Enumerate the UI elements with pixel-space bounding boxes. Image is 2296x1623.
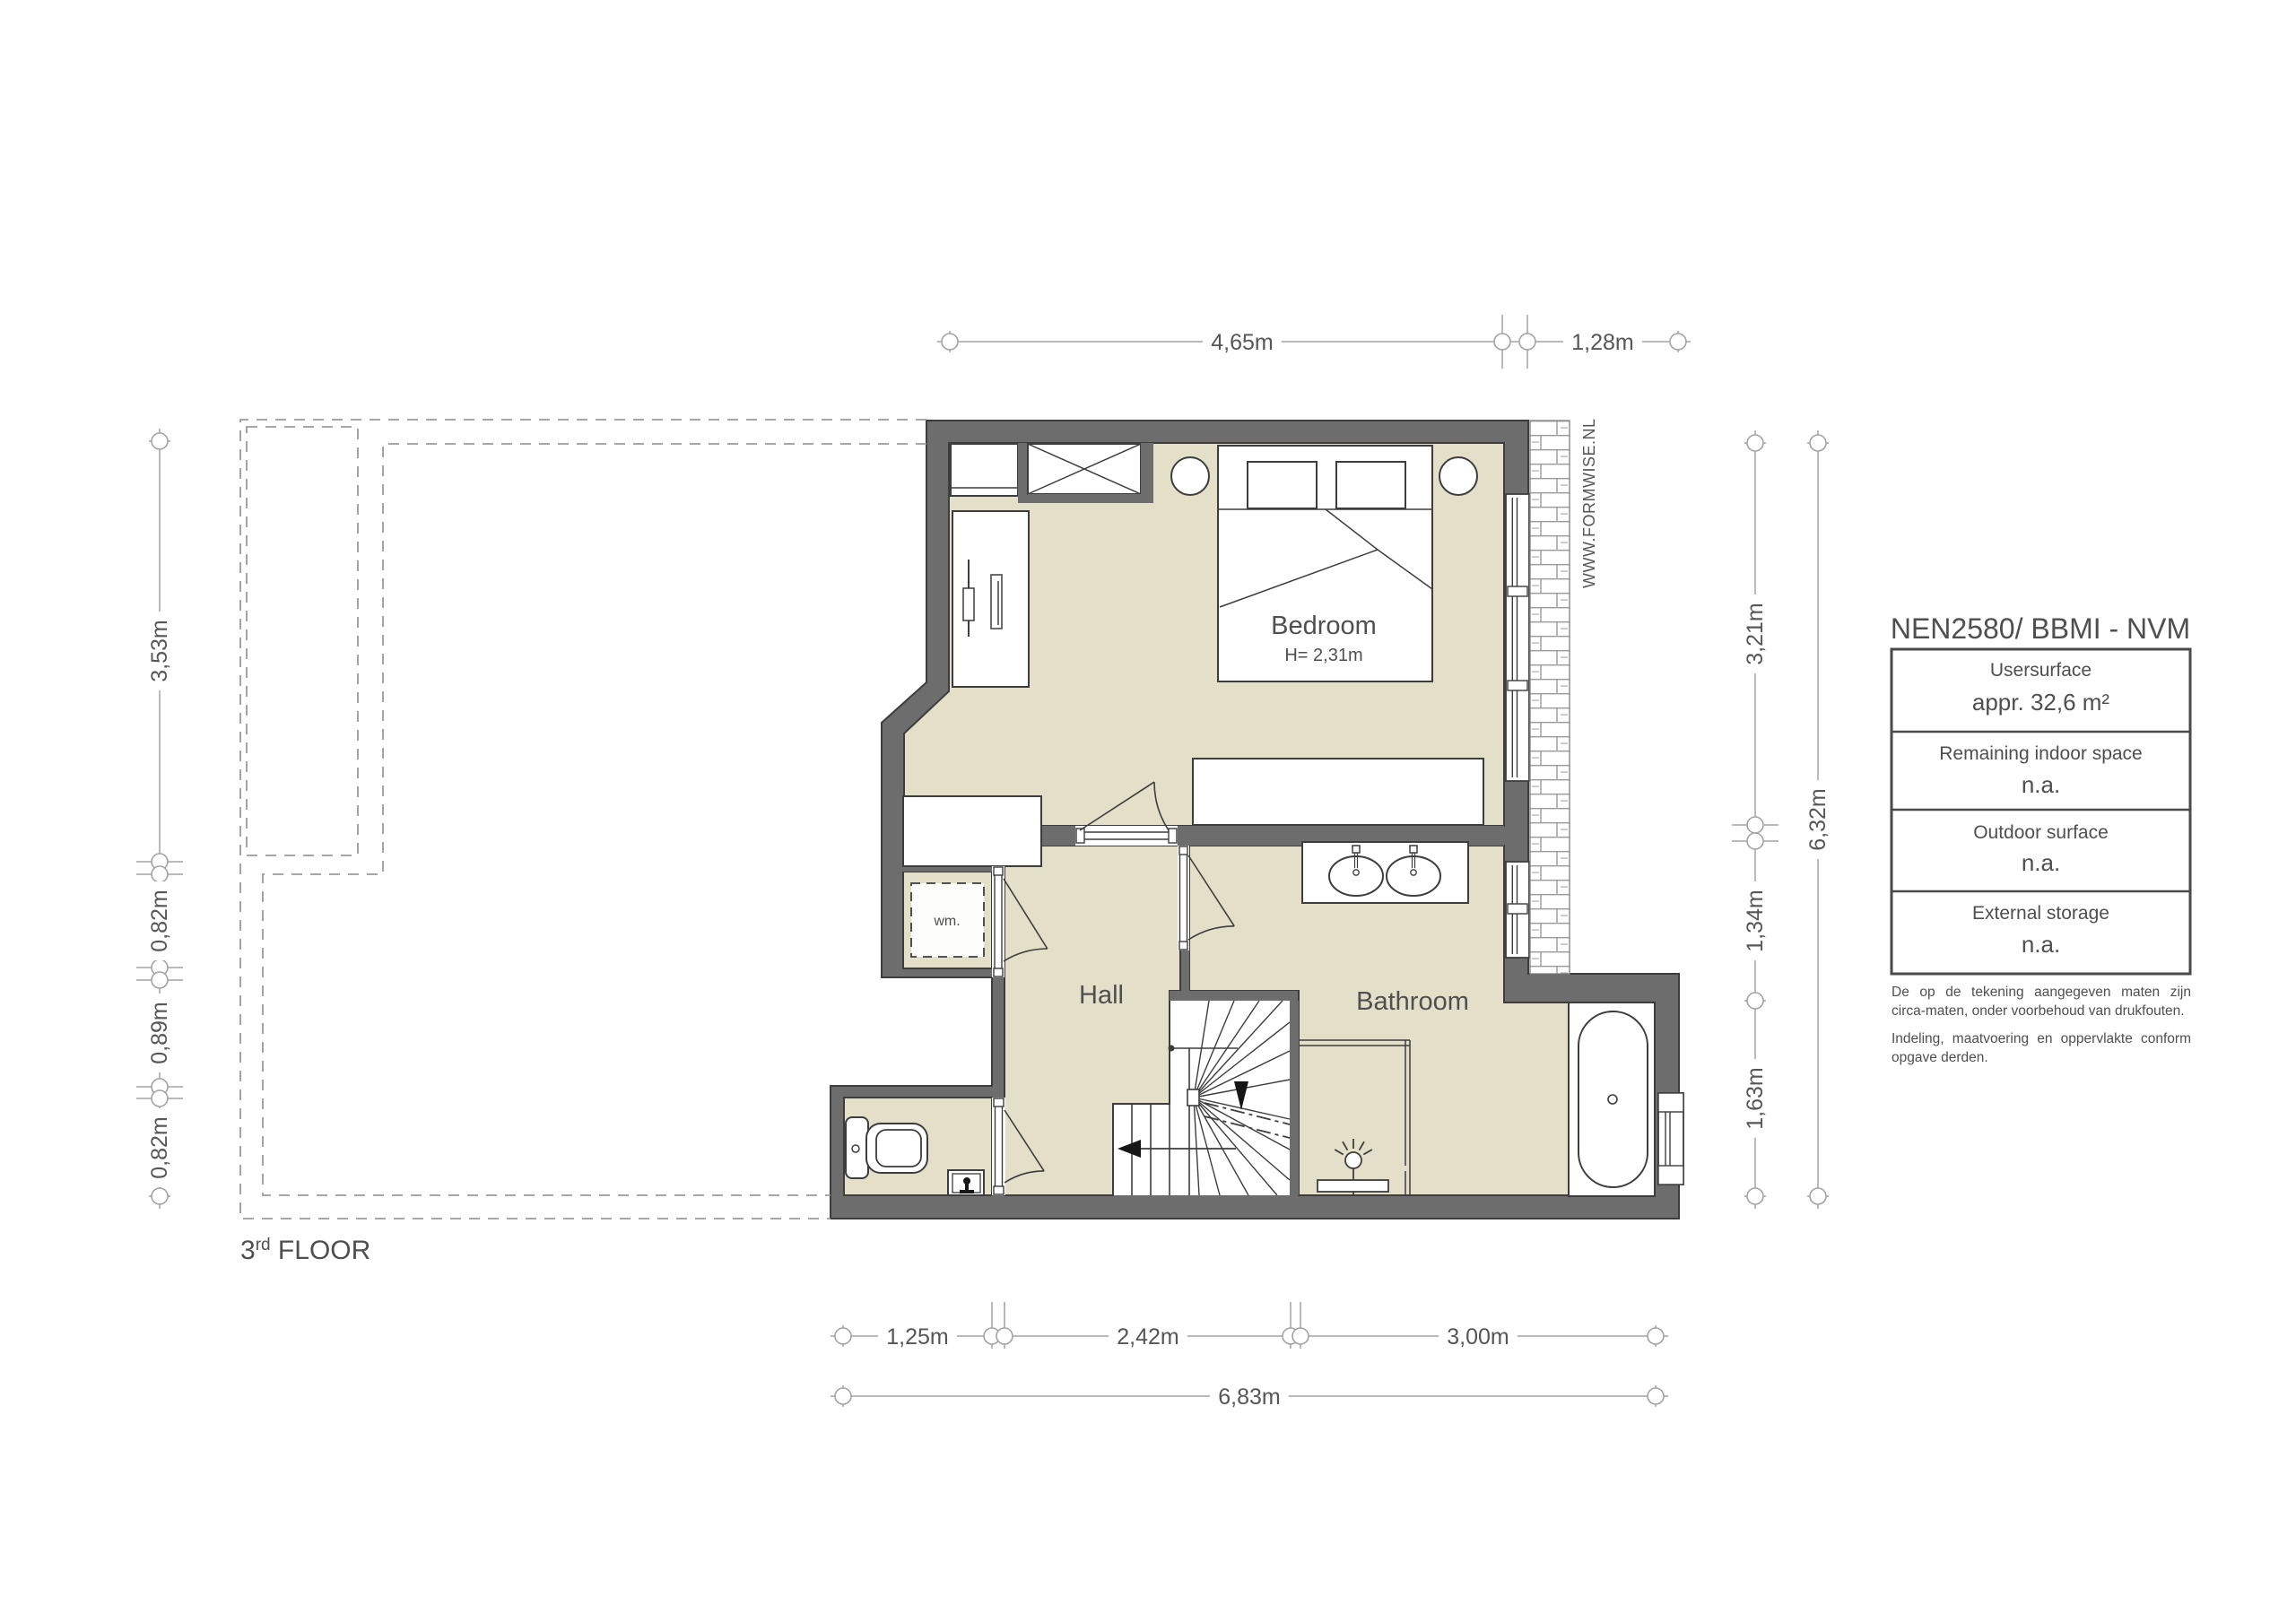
svg-text:n.a.: n.a. bbox=[2022, 771, 2060, 798]
svg-text:appr. 32,6 m²: appr. 32,6 m² bbox=[1972, 689, 2110, 716]
svg-text:1,28m: 1,28m bbox=[1571, 330, 1633, 355]
svg-text:n.a.: n.a. bbox=[2022, 931, 2060, 958]
svg-text:1,25m: 1,25m bbox=[886, 1324, 948, 1350]
svg-text:External storage: External storage bbox=[1972, 903, 2109, 924]
svg-text:3,00m: 3,00m bbox=[1447, 1324, 1509, 1350]
svg-text:n.a.: n.a. bbox=[2022, 849, 2060, 876]
svg-text:H= 2,31m: H= 2,31m bbox=[1284, 646, 1362, 665]
svg-text:3,53m: 3,53m bbox=[147, 620, 172, 681]
svg-text:Usersurface: Usersurface bbox=[1990, 660, 2092, 681]
svg-text:0,82m: 0,82m bbox=[147, 1116, 172, 1178]
svg-text:wm.: wm. bbox=[933, 914, 960, 929]
svg-text:6,32m: 6,32m bbox=[1805, 788, 1831, 850]
svg-text:1,34m: 1,34m bbox=[1743, 890, 1768, 951]
svg-text:Bedroom: Bedroom bbox=[1271, 612, 1377, 640]
svg-text:0,89m: 0,89m bbox=[147, 1002, 172, 1063]
svg-text:2,42m: 2,42m bbox=[1117, 1324, 1178, 1350]
svg-text:Bathroom: Bathroom bbox=[1356, 987, 1469, 1016]
svg-text:1,63m: 1,63m bbox=[1743, 1067, 1768, 1129]
svg-text:Outdoor surface: Outdoor surface bbox=[1973, 822, 2109, 843]
svg-text:Hall: Hall bbox=[1079, 981, 1124, 1010]
svg-text:Remaining indoor space: Remaining indoor space bbox=[1939, 743, 2142, 764]
svg-text:0,82m: 0,82m bbox=[147, 890, 172, 951]
svg-text:NEN2580/ BBMI - NVM: NEN2580/ BBMI - NVM bbox=[1891, 612, 2190, 645]
svg-text:3,21m: 3,21m bbox=[1743, 603, 1768, 664]
svg-text:3rd FLOOR: 3rd FLOOR bbox=[240, 1236, 370, 1265]
svg-text:4,65m: 4,65m bbox=[1211, 330, 1273, 355]
svg-text:6,83m: 6,83m bbox=[1218, 1384, 1280, 1410]
svg-text:WWW.FORMWISE.NL: WWW.FORMWISE.NL bbox=[1580, 419, 1598, 588]
